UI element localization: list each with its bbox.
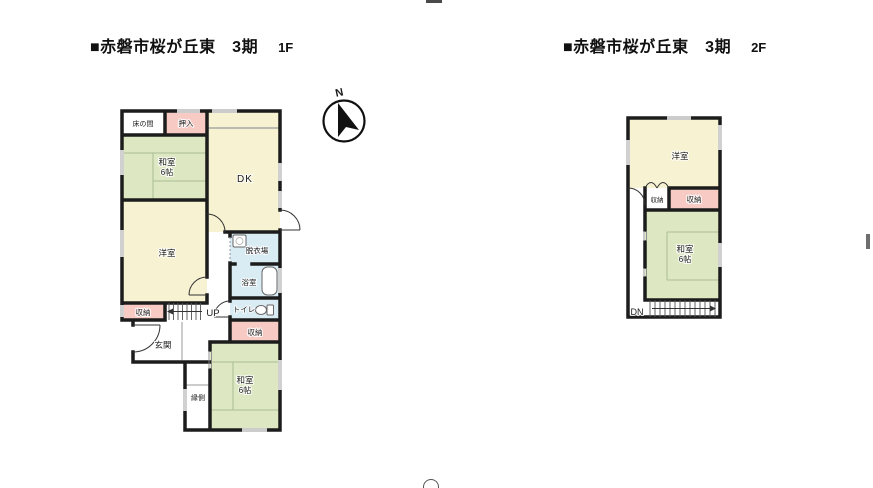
label-shuno-left: 収納	[136, 307, 151, 317]
label-shuno-2f-right: 収納	[687, 194, 702, 204]
staircase-up	[167, 303, 202, 320]
floor2-title-text: ■赤磐市桜が丘東 3期	[563, 33, 731, 57]
toilet-bowl-icon	[256, 306, 267, 315]
label-youshitsu-1f: 洋室	[158, 248, 176, 258]
label-oshiire: 押入	[179, 118, 194, 128]
floor1-floor-label: 1F	[278, 40, 293, 55]
floorplan-2f: 洋室 収納 収納 和室 6帖 DN	[625, 115, 725, 325]
floorplan-1f: 床の間 押入 和室 6帖 DK 洋室 脱衣場 浴室 トイレ 収納 UP 玄関 収…	[115, 105, 320, 440]
label-washitsu-2f: 和室	[676, 244, 694, 254]
label-tokonoma: 床の間	[133, 119, 154, 128]
label-washitsu-lower: 和室	[236, 375, 254, 385]
stairs-up-arrow-icon	[167, 309, 173, 315]
label-toire: トイレ	[233, 305, 256, 314]
washing-machine-icon	[233, 235, 246, 247]
label-washitsu-2f-size: 6帖	[679, 254, 691, 264]
compass-icon: N	[316, 80, 378, 146]
toilet-tank-icon	[267, 305, 274, 315]
door-arc-2f	[628, 188, 645, 205]
floor2-title: ■赤磐市桜が丘東 3期 2F	[563, 33, 766, 57]
room-dk	[207, 111, 280, 232]
label-shuno-right: 収納	[248, 327, 263, 337]
label-washitsu-lower-size: 6帖	[239, 385, 251, 395]
scan-artifact-bottom	[423, 479, 439, 488]
floor2-floor-label: 2F	[751, 40, 766, 55]
label-washitsu-upper-size: 6帖	[161, 167, 173, 177]
floor1-rooms	[122, 111, 280, 430]
label-washitsu-upper: 和室	[158, 157, 176, 167]
compass-north-label: N	[334, 86, 344, 99]
label-shuno-2f-left: 収納	[651, 195, 664, 204]
label-youshitsu-2f: 洋室	[671, 151, 689, 161]
label-genkan: 玄関	[154, 340, 171, 350]
scan-artifact-right	[866, 234, 870, 249]
bathtub-icon	[262, 267, 277, 295]
staircase-down	[650, 300, 716, 317]
label-dn: DN	[631, 307, 644, 317]
label-up: UP	[206, 308, 219, 319]
floor1-title-text: ■赤磐市桜が丘東 3期	[90, 33, 258, 57]
label-yokushitsu: 浴室	[242, 277, 257, 287]
label-datsuijo: 脱衣場	[246, 245, 269, 255]
floor1-title: ■赤磐市桜が丘東 3期 1F	[90, 33, 293, 57]
label-engawa: 縁側	[191, 393, 205, 402]
north-arrow-icon	[338, 103, 359, 137]
label-dk: DK	[237, 174, 253, 185]
scan-artifact-top	[426, 0, 442, 3]
